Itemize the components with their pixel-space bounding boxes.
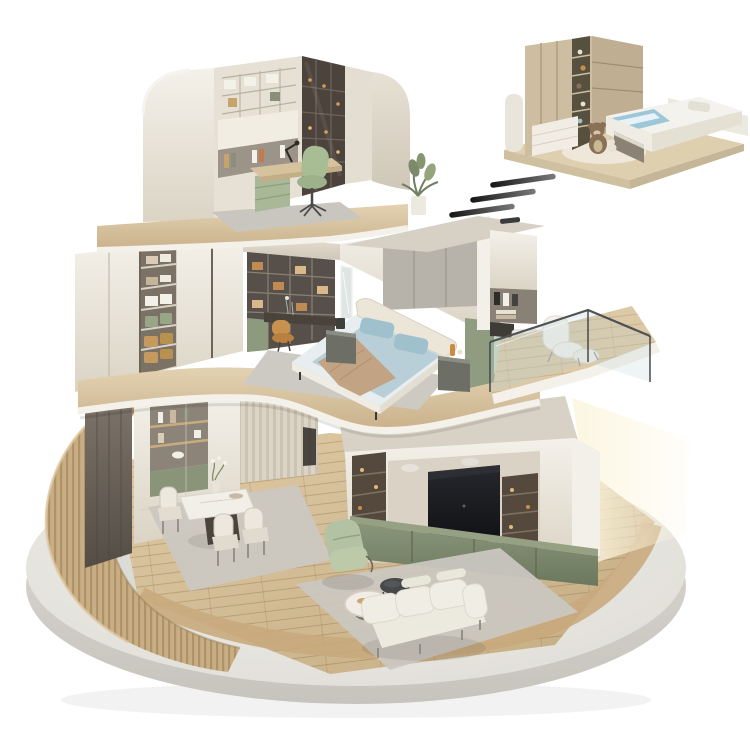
render-canvas [0, 0, 750, 750]
tv-wall-right-pillar [572, 440, 600, 562]
curved-wall-left [143, 68, 214, 222]
open-wardrobe-bay [141, 243, 176, 375]
wall-right-of-bookcase [345, 66, 372, 184]
floor-mirror [341, 266, 352, 320]
motion-dashes [449, 173, 556, 218]
isometric-home-scene [0, 0, 750, 750]
vignette-curved-wall [505, 94, 523, 152]
doorway-shadow [303, 427, 316, 466]
top-floor-study [97, 56, 438, 252]
wood-divider-panel [85, 397, 132, 568]
kids-bedroom-vignette [504, 36, 748, 189]
desk-green-cabinet [247, 318, 268, 352]
curved-wall-right [372, 72, 410, 190]
